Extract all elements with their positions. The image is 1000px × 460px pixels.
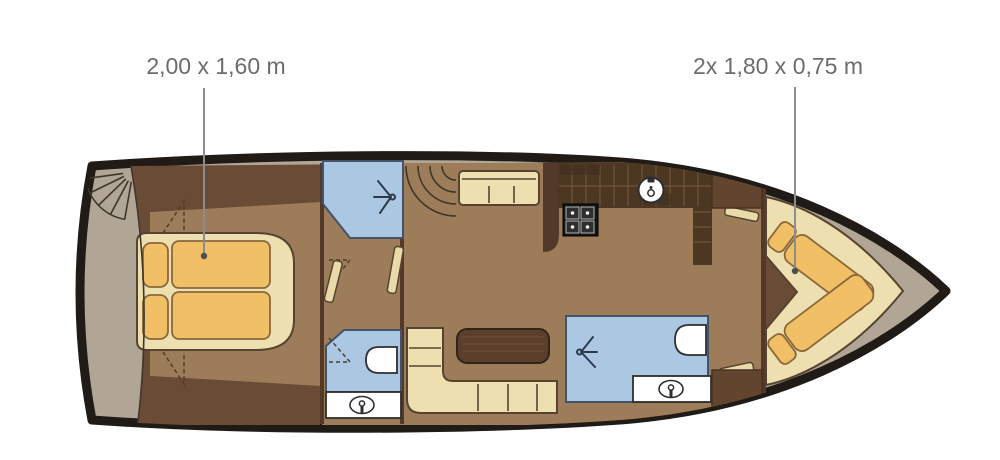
dinette-table (457, 329, 549, 363)
stove-icon (563, 204, 598, 236)
twin-beds-size-label: 2x 1,80 x 0,75 m (693, 53, 863, 79)
toilet-icon-mid (366, 347, 397, 373)
master-mattress-1 (172, 241, 270, 288)
sink-icon (639, 177, 664, 203)
wall-salon-galley (543, 163, 559, 252)
leader-dot-master (201, 253, 207, 259)
master-mattress-2 (172, 292, 270, 339)
master-bed-size-label: 2,00 x 1,60 m (146, 53, 285, 79)
toilet-icon-aft (675, 325, 706, 355)
washbasin-icon-aft (659, 381, 683, 399)
boat-floor-plan: 2,00 x 1,60 m 2x 1,80 x 0,75 m (0, 0, 1000, 460)
master-pillow-2 (143, 295, 168, 339)
galley-cabinet-shade (560, 165, 600, 175)
wardrobe-bottom (712, 370, 762, 417)
leader-dot-twin (792, 268, 798, 274)
settee-fwd (459, 171, 539, 205)
floor-plan-canvas: 2,00 x 1,60 m 2x 1,80 x 0,75 m (0, 0, 1000, 460)
master-pillow-1 (143, 243, 168, 287)
washbasin-icon-mid (350, 397, 374, 415)
galley-side-cabinet (693, 163, 712, 265)
